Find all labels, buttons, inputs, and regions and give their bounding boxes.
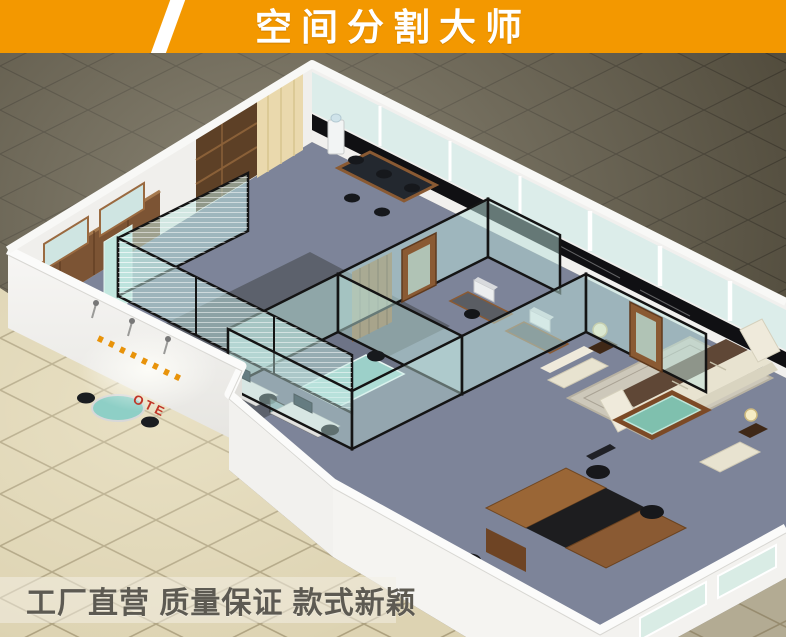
- water-cooler: [328, 114, 344, 154]
- promo-image: OTE 空间分割大师 工厂直营 质量保证 款式新颖: [0, 0, 786, 637]
- footer-slogan-bar: 工厂直营 质量保证 款式新颖: [0, 577, 396, 623]
- footer-slogan: 工厂直营 质量保证 款式新颖: [26, 578, 417, 622]
- banner-title: 空间分割大师: [0, 0, 786, 53]
- promo-banner: 空间分割大师: [0, 0, 786, 53]
- office-render: OTE: [0, 0, 786, 637]
